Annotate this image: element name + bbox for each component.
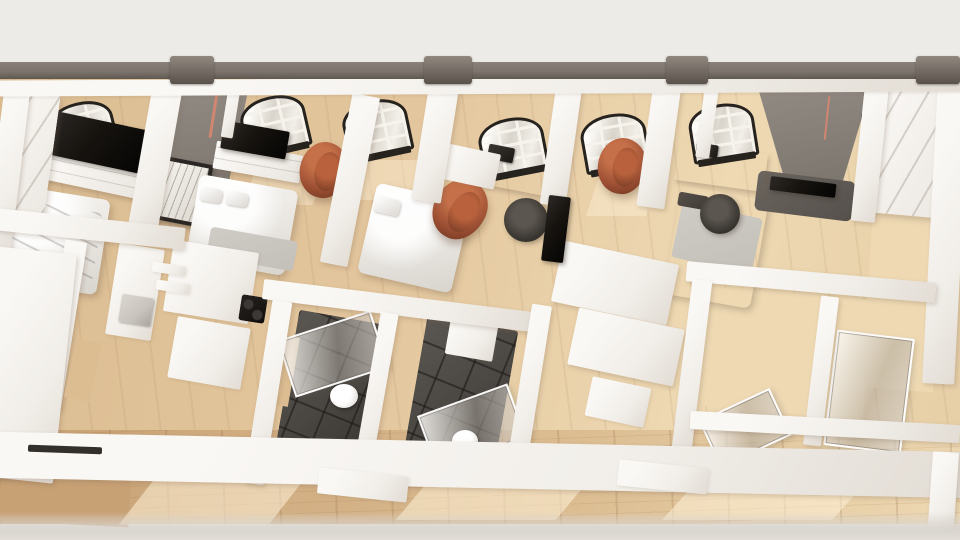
wall-pilaster-tab [916,56,960,84]
kitchen-sink [118,294,154,327]
kitchen-island [167,316,251,390]
wall-pilaster-tab [170,56,214,84]
office-chair [504,198,548,242]
wall-pilaster-tab [424,56,472,84]
toilet [330,384,358,408]
apartment-render-scene [0,0,960,540]
office-chair [700,194,740,234]
foreground-wall-blur [0,514,960,540]
wall-pilaster-tab [666,56,708,84]
exterior-wall-band [0,62,960,79]
